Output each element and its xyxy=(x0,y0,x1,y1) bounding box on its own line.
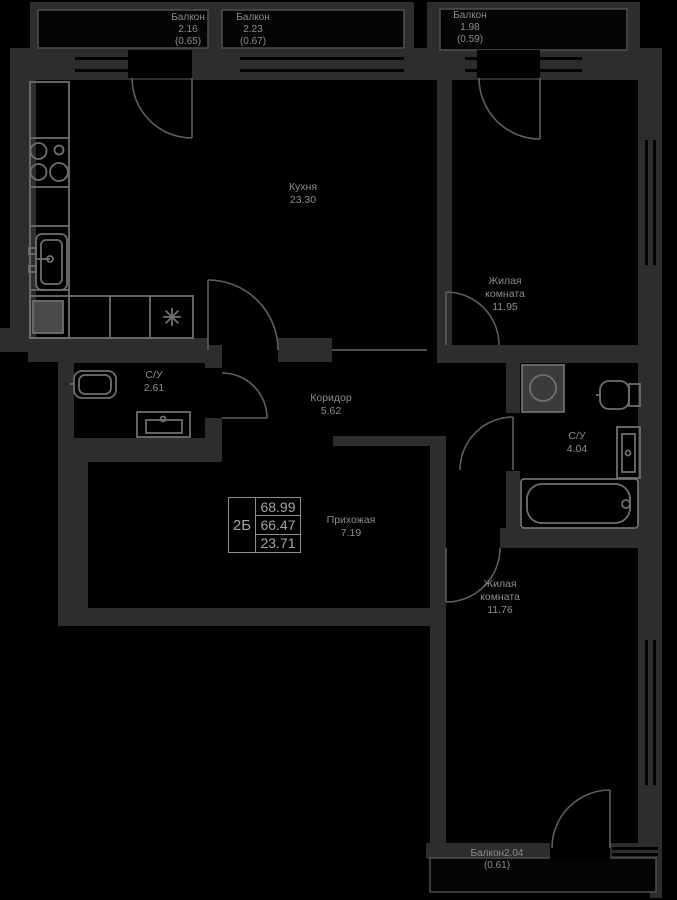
balcony-reduced-area: (0.65) xyxy=(171,36,205,48)
room-name: Коридор xyxy=(310,392,351,405)
area-without-balcony: 66.47 xyxy=(256,515,300,533)
apartment-stat-box: 2Б 68.99 66.47 23.71 xyxy=(228,497,301,553)
balcony-name: Балкон xyxy=(171,12,205,24)
door-arcs xyxy=(132,78,610,848)
apartment-type: 2Б xyxy=(229,498,256,552)
room-name: Кухня xyxy=(289,181,317,194)
balcony-area: 1.98 xyxy=(453,22,487,34)
toilet-icon-wc1 xyxy=(70,371,116,398)
toilet-icon-wc2 xyxy=(596,381,640,409)
balcony-reduced-area: (0.61) xyxy=(471,860,524,872)
fridge-icon xyxy=(33,301,63,333)
room-name: Жилая xyxy=(480,578,520,591)
room-name: С/У xyxy=(144,369,164,382)
balcony-area: 2.23 xyxy=(236,24,270,36)
balcony-name: Балкон xyxy=(471,848,505,859)
kitchen-counter xyxy=(30,82,193,338)
walls xyxy=(0,2,662,898)
boiler-asterisk-icon xyxy=(163,308,181,326)
room-label-living1: Жилая комната 11.95 xyxy=(485,275,525,313)
balcony-label-bottom: Балкон2.04 (0.61) xyxy=(471,848,524,872)
room-label-wc1: С/У 2.61 xyxy=(144,369,164,395)
washbasin-icon-wc2 xyxy=(617,427,640,478)
living-area: 23.71 xyxy=(256,534,300,552)
room-label-living2: Жилая комната 11.76 xyxy=(480,578,520,616)
room-name: С/У xyxy=(567,430,587,443)
balcony-label-top-mid: Балкон 2.23 (0.67) xyxy=(236,12,270,49)
room-label-hall: Прихожая 7.19 xyxy=(327,514,376,540)
room-area: 7.19 xyxy=(327,527,376,540)
balcony-area: 2.04 xyxy=(504,848,523,859)
balcony-label-top-right: Балкон 1.98 (0.59) xyxy=(453,10,487,47)
room-name: Жилая xyxy=(485,275,525,288)
balcony-label-top-left: Балкон 2.16 (0.65) xyxy=(171,12,205,49)
floor-plan: Балкон 2.16 (0.65) Балкон 2.23 (0.67) Ба… xyxy=(0,0,677,900)
room-area: 11.76 xyxy=(480,604,520,617)
room-area: 4.04 xyxy=(567,443,587,456)
room-area: 2.61 xyxy=(144,382,164,395)
balcony-reduced-area: (0.59) xyxy=(453,34,487,46)
room-area: 23.30 xyxy=(289,194,317,207)
stove-burners-icon xyxy=(31,143,69,181)
balcony-name: Балкон xyxy=(453,10,487,22)
room-name: комната xyxy=(480,591,520,604)
room-area: 11.95 xyxy=(485,301,525,314)
room-name: комната xyxy=(485,288,525,301)
room-label-wc2: С/У 4.04 xyxy=(567,430,587,456)
room-name: Прихожая xyxy=(327,514,376,527)
room-label-kitchen: Кухня 23.30 xyxy=(289,181,317,207)
washbasin-icon-wc1 xyxy=(137,412,190,437)
room-label-corridor: Коридор 5.62 xyxy=(310,392,351,418)
room-area: 5.62 xyxy=(310,405,351,418)
balcony-reduced-area: (0.67) xyxy=(236,36,270,48)
balcony-name: Балкон xyxy=(236,12,270,24)
balcony-area: 2.16 xyxy=(171,24,205,36)
total-area: 68.99 xyxy=(256,498,300,515)
washing-machine-icon xyxy=(522,365,564,412)
bathtub-icon xyxy=(521,479,638,528)
